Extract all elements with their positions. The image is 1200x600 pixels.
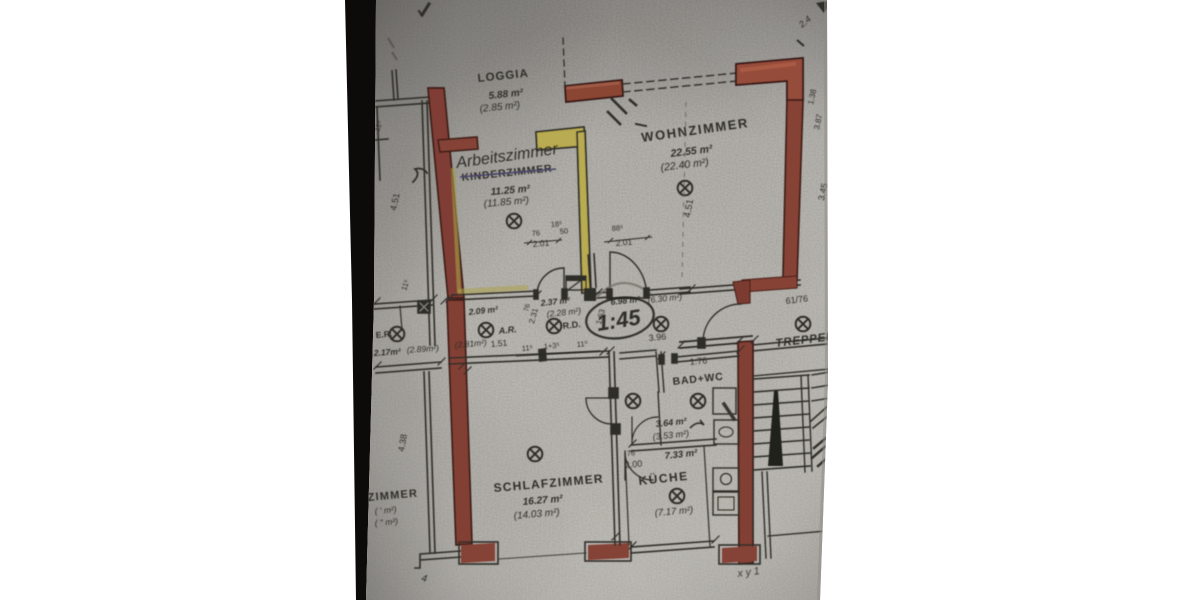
svg-text:1+3⁵: 1+3⁵ [543,341,560,351]
svg-text:11⁵: 11⁵ [521,343,533,353]
svg-text:( ″ m²): ( ″ m²) [374,516,398,528]
svg-text:1.51: 1.51 [490,338,508,349]
svg-text:R.D.: R.D. [562,319,581,331]
svg-text:11⁰: 11⁰ [576,339,588,349]
svg-text:50: 50 [559,226,568,236]
svg-text:2.01: 2.01 [532,238,550,249]
svg-text:1.76: 1.76 [689,355,707,367]
svg-text:( ′ m²): ( ′ m²) [374,504,397,516]
svg-text:88⁵: 88⁵ [611,223,623,233]
svg-text:A.R.: A.R. [497,324,517,336]
svg-text:76: 76 [531,228,540,238]
svg-text:3.96: 3.96 [648,331,666,343]
svg-text:2.01: 2.01 [615,237,633,248]
svg-text:2.00: 2.00 [624,459,642,470]
svg-text:76: 76 [626,448,635,458]
svg-text:2.17m²: 2.17m² [372,346,402,358]
